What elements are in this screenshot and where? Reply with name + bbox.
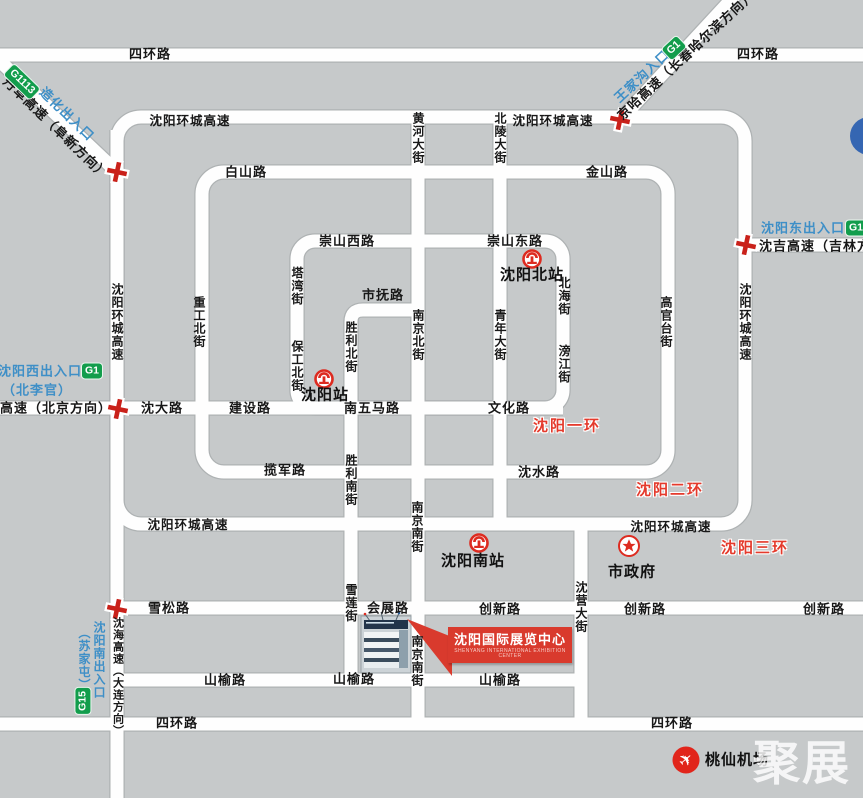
road-label-xuesong: 雪松路 [148,602,190,615]
ring-label-first: 沈阳一环 [533,419,601,434]
road-label-pangjiang: 滂江街 [558,345,570,384]
highway-badge-g1-west: G1 [82,363,102,378]
road-label-tawan: 塔湾街 [291,267,303,306]
entrance-label-south: 沈阳南出入口 [93,621,105,699]
road-label-shenglinan: 胜利南街 [345,454,357,506]
station-label-shenyang: 沈阳站 [301,388,349,403]
road-label-xuelian: 雪莲街 [345,584,357,623]
entrance-label-west: 沈阳西出入口 [0,365,82,378]
highway-badge-g1-east: G1 [846,220,863,235]
road-label-huancheng-left-vertical: 沈阳环城高速 [111,283,123,361]
map-road-network: ✈ [0,0,863,798]
entrance-label-east: 沈阳东出入口 [761,222,845,235]
road-label-huancheng-bottom-left: 沈阳环城高速 [147,519,228,532]
road-label-wenhua: 文化路 [488,402,530,415]
highway-label-shenji: 沈吉高速（吉林方向） [759,240,863,253]
road-label-lanjun: 揽军路 [264,464,306,477]
watermark: 聚展 [753,740,851,787]
road-label-shenshui: 沈水路 [518,466,560,479]
road-label-jinshan: 金山路 [586,166,628,179]
shenyang-map: ✈ 四环路 四环路 四环路 四环路 沈阳环城高速 沈阳环城高速 沈阳环城高速 沈… [0,0,863,798]
road-label-chuangxin-2: 创新路 [624,603,666,616]
road-label-jianshe: 建设路 [229,402,271,415]
road-label-huancheng-top-right: 沈阳环城高速 [512,115,593,128]
road-label-huancheng-right-vertical: 沈阳环城高速 [739,283,751,361]
road-label-nanjingnan-1: 南京南街 [411,501,423,553]
road-label-shenying: 沈营大街 [575,581,587,633]
entrance-sublabel-south: （苏家屯） [78,627,90,692]
station-label-shenyang-south: 沈阳南站 [441,554,505,569]
highway-badge-g15-south: G15 [75,688,90,714]
exhibition-building-photo [361,612,411,673]
road-label-chongshan-east: 崇山东路 [487,235,543,248]
exhibition-center-subtitle: SHENYANG INTERNATIONAL EXHIBITION CENTER [448,649,572,659]
poi-label-city-hall: 市政府 [608,565,656,580]
highway-label-jingha-beijing: 京哈高速（北京方向） [0,402,112,415]
blue-circle-badge [850,117,863,155]
road-label-sihuan-top-right: 四环路 [737,48,779,61]
road-label-nanwuma: 南五马路 [344,402,400,415]
road-label-chuangxin-1: 创新路 [479,603,521,616]
road-label-shanyu-1: 山榆路 [204,674,246,687]
road-label-sihuan-bottom-right: 四环路 [651,717,693,730]
road-label-huanghe: 黄河大街 [412,112,424,164]
road-label-nanjingnan-2: 南京南街 [411,635,423,687]
road-label-sihuan-bottom-left: 四环路 [156,717,198,730]
road-label-huizhan: 会展路 [367,602,409,615]
road-label-qingnian: 青年大街 [494,309,506,361]
road-label-beiling: 北陵大街 [494,112,506,164]
ring-label-third: 沈阳三环 [721,541,789,556]
road-label-gaoguantai: 高官台街 [660,296,672,348]
road-label-huancheng-top-left: 沈阳环城高速 [149,115,230,128]
road-label-baishan: 白山路 [225,166,267,179]
ring-label-second: 沈阳二环 [636,483,704,498]
airport-icon: ✈ [673,747,700,774]
city-hall-star-icon [619,536,639,556]
road-label-chongshan-west: 崇山西路 [319,235,375,248]
road-label-zhonggongbei: 重工北街 [193,296,205,348]
road-label-nanjingbei: 南京北街 [412,309,424,361]
exhibition-center-title: 沈阳国际展览中心 [448,633,572,646]
road-label-shanyu-3: 山榆路 [479,674,521,687]
entrance-sublabel-west: （北李官） [2,384,72,397]
exhibition-center-callout: 沈阳国际展览中心 SHENYANG INTERNATIONAL EXHIBITI… [448,627,572,663]
road-surface-layer [0,0,863,798]
road-label-chuangxin-3: 创新路 [803,603,845,616]
road-label-shenda: 沈大路 [141,402,183,415]
station-label-shenyang-north: 沈阳北站 [500,268,564,283]
road-label-baogongbei: 保工北街 [291,340,303,392]
road-label-sihuan-top-left: 四环路 [129,48,171,61]
road-label-shanyu-2: 山榆路 [333,673,375,686]
road-label-shenglibei: 胜利北街 [345,321,357,373]
road-label-huancheng-bottom-right: 沈阳环城高速 [630,521,711,534]
road-label-shifu: 市抚路 [362,289,404,302]
road-label-shenhai-expressway: 沈海高速（大连方向） [112,617,123,737]
